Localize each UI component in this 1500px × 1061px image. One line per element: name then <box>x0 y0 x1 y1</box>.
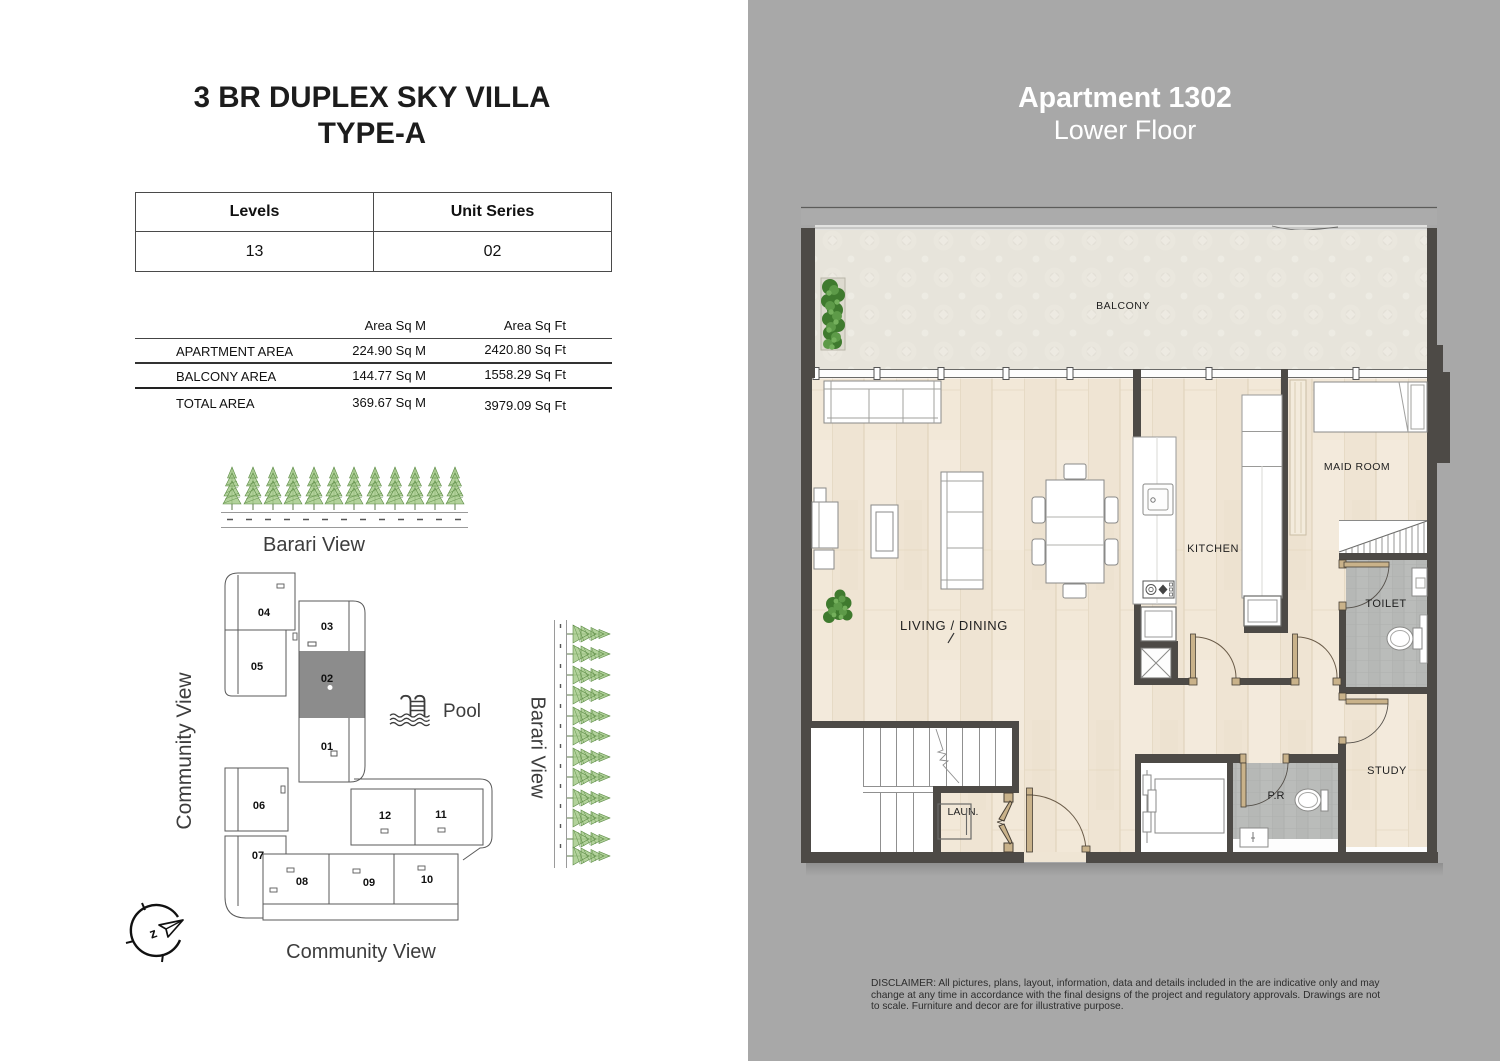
svg-text:07: 07 <box>252 850 264 862</box>
svg-text:LAUN.: LAUN. <box>948 806 979 818</box>
svg-text:P.R: P.R <box>1268 790 1285 802</box>
svg-text:TOILET: TOILET <box>1365 598 1406 610</box>
svg-text:KITCHEN: KITCHEN <box>1187 543 1239 555</box>
svg-text:10: 10 <box>421 874 433 886</box>
svg-text:09: 09 <box>363 877 375 889</box>
svg-text:08: 08 <box>296 876 308 888</box>
svg-text:BALCONY: BALCONY <box>1096 300 1150 312</box>
svg-text:12: 12 <box>379 810 391 822</box>
svg-text:05: 05 <box>251 661 263 673</box>
svg-text:06: 06 <box>253 800 265 812</box>
svg-text:04: 04 <box>258 607 271 619</box>
svg-text:MAID ROOM: MAID ROOM <box>1324 461 1390 473</box>
svg-text:02: 02 <box>321 673 333 685</box>
svg-text:11: 11 <box>435 809 447 821</box>
svg-text:LIVING / DINING: LIVING / DINING <box>900 618 1008 633</box>
svg-text:z: z <box>147 924 159 941</box>
svg-text:03: 03 <box>321 621 333 633</box>
svg-text:01: 01 <box>321 741 333 753</box>
svg-text:STUDY: STUDY <box>1367 765 1407 777</box>
